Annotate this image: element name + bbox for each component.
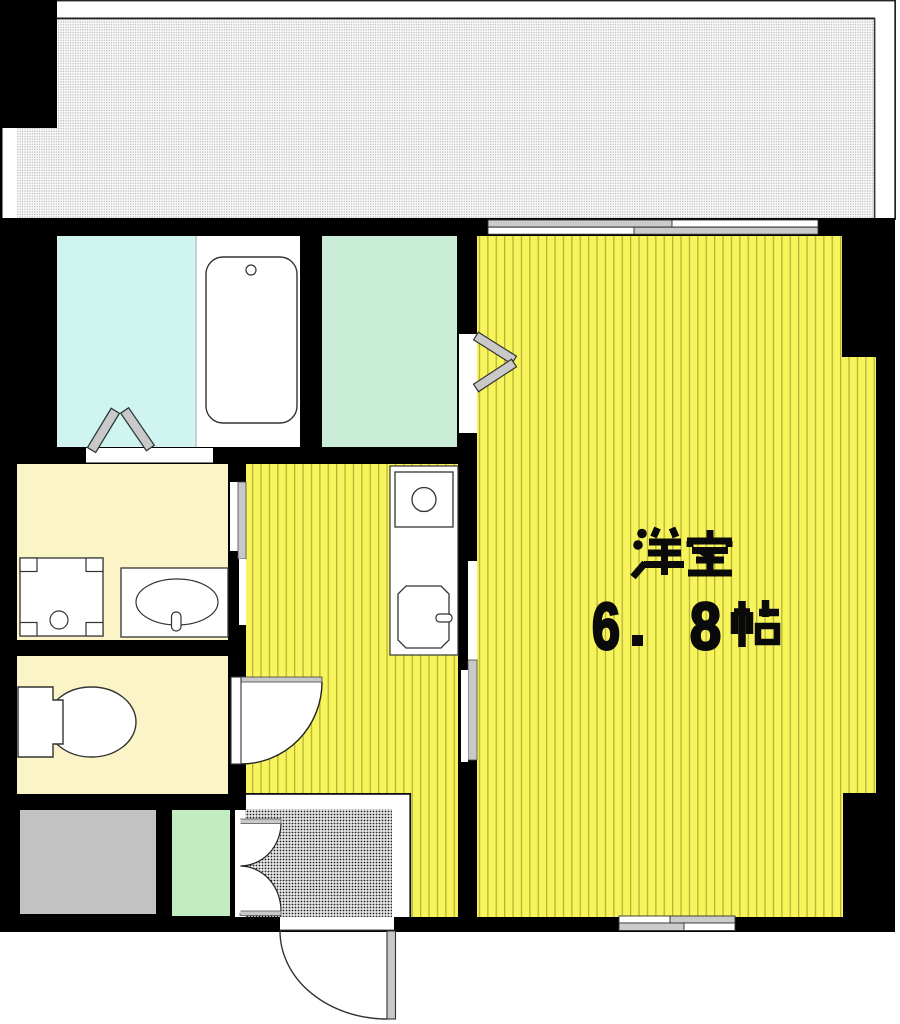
svg-text:6: 6 bbox=[592, 589, 620, 663]
svg-text:8: 8 bbox=[690, 589, 721, 663]
